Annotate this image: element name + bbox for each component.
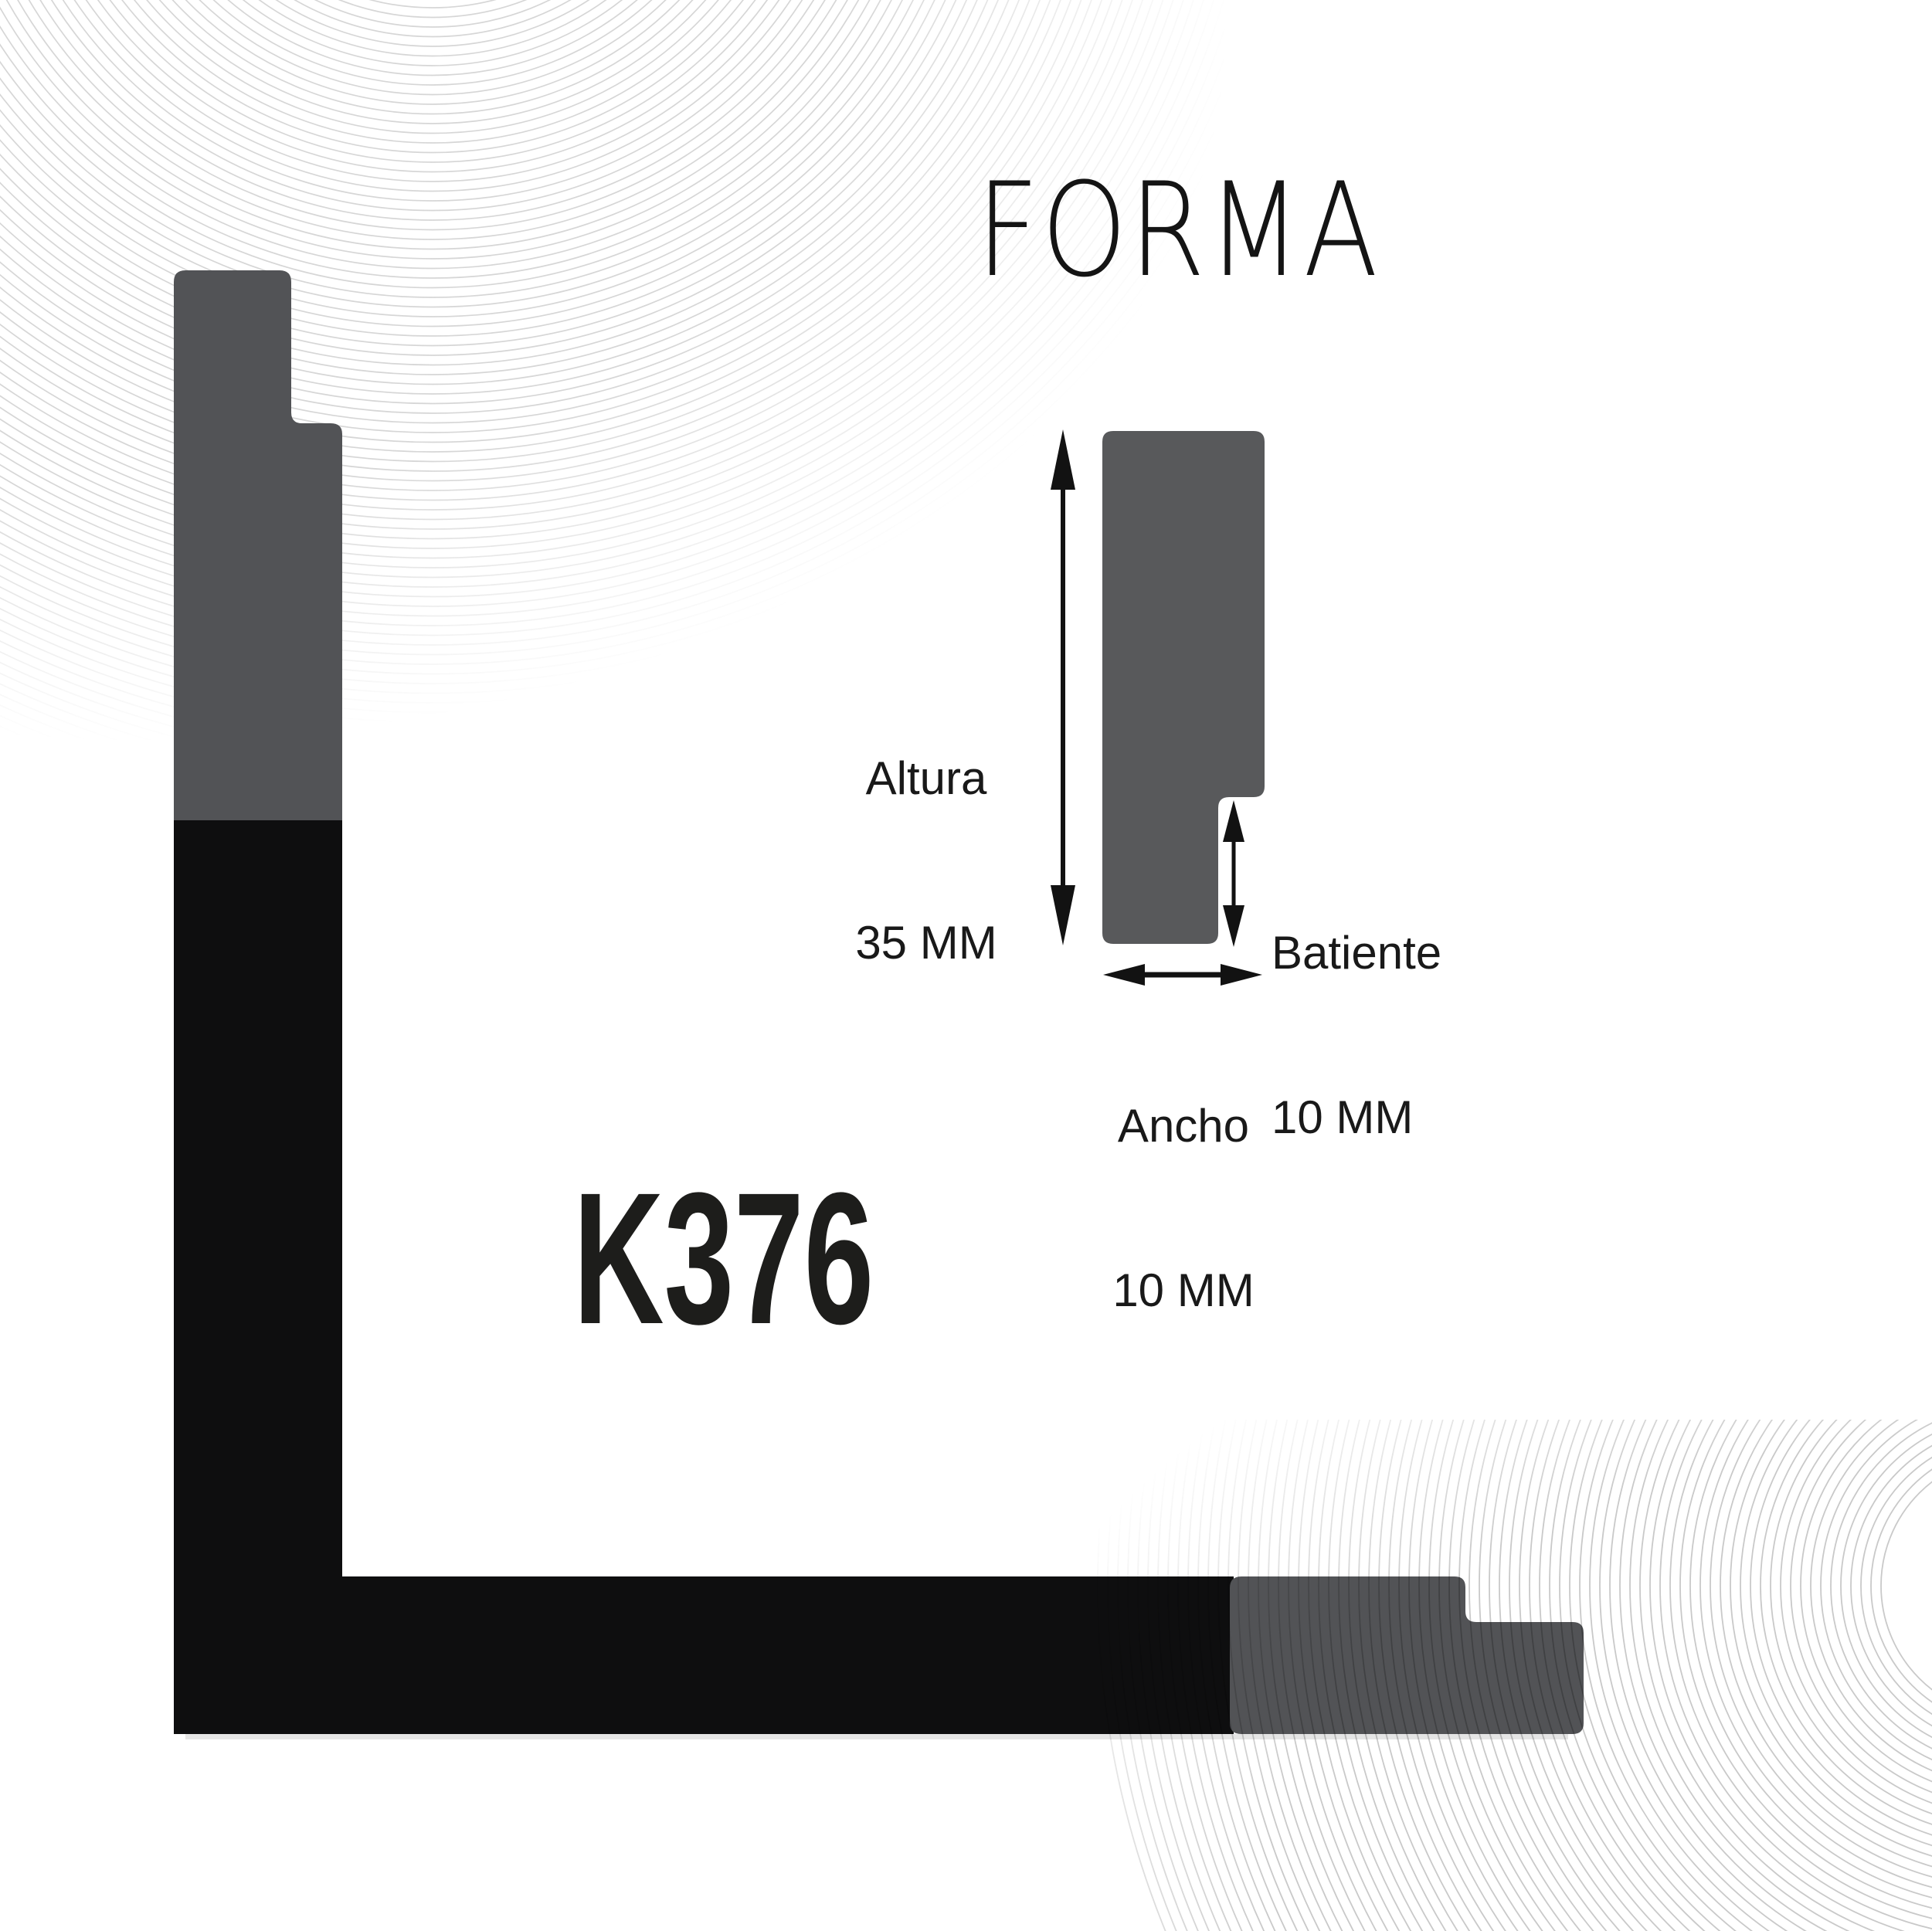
contour-line (1319, 1420, 1932, 1931)
height-label-value: 35 MM (787, 915, 1065, 970)
contour-line (1700, 1420, 1932, 1898)
contour-line (1851, 1424, 1932, 1747)
profile-cross-section (1102, 431, 1265, 944)
contour-line (1640, 1420, 1932, 1931)
contour-line (1660, 1420, 1932, 1931)
contour-line (1530, 1420, 1932, 1931)
contour-line (1238, 1420, 1932, 1931)
arrow-right-icon (1221, 964, 1262, 986)
contour-line (1841, 1420, 1932, 1757)
arrow-down-icon (1223, 905, 1244, 947)
height-label-name: Altura (787, 751, 1065, 806)
contour-line (1720, 1420, 1932, 1878)
contour-line (1138, 1420, 1932, 1931)
rabbet-arrow (1223, 800, 1244, 947)
width-label-value: 10 MM (1044, 1263, 1323, 1318)
arrow-left-icon (1103, 964, 1145, 986)
contour-line (1509, 1420, 1932, 1931)
contour-line (1128, 1420, 1932, 1931)
width-label: Ancho 10 MM (1044, 989, 1323, 1427)
contour-line (1228, 1420, 1932, 1931)
contour-line (1630, 1420, 1932, 1931)
contour-line (1469, 1420, 1932, 1931)
width-label-name: Ancho (1044, 1098, 1323, 1153)
moulding-end-cap-vertical (174, 270, 342, 820)
contour-line (1791, 1420, 1932, 1807)
contour-line (1299, 1420, 1932, 1931)
contour-line (1429, 1420, 1932, 1931)
brand-title: FORMA (976, 165, 1380, 295)
contour-line (1178, 1420, 1932, 1931)
contour-line (1379, 1420, 1932, 1931)
rabbet-label-name: Batiente (1272, 925, 1441, 980)
contour-line (1871, 1444, 1932, 1727)
contour-line (1560, 1420, 1932, 1931)
arrow-up-icon (1223, 800, 1244, 842)
contour-line (1449, 1420, 1932, 1931)
contour-line (1881, 1454, 1932, 1717)
contour-line (1108, 1420, 1932, 1931)
contour-line (1750, 1420, 1932, 1848)
width-arrow (1103, 964, 1262, 986)
contour-line (1459, 1420, 1932, 1931)
contour-line (1359, 1420, 1932, 1931)
wave-pattern-bottom-right (1074, 1420, 1932, 1931)
contour-line (1710, 1420, 1932, 1888)
contour-line (1208, 1420, 1932, 1931)
contour-line (1399, 1420, 1932, 1931)
height-label: Altura 35 MM (787, 641, 1065, 1080)
product-sheet: FORMA K376 Altura 35 MM Batiente 10 MM A… (0, 0, 1932, 1931)
contour-line (1620, 1420, 1932, 1931)
contour-line (1479, 1420, 1932, 1931)
arrow-up-icon (1051, 429, 1075, 490)
model-code: K376 (573, 1165, 874, 1352)
contour-line (1801, 1420, 1932, 1797)
contour-line (1821, 1420, 1932, 1777)
contour-line (1740, 1420, 1932, 1858)
contour-line (1610, 1420, 1932, 1931)
contour-line (1811, 1420, 1932, 1787)
